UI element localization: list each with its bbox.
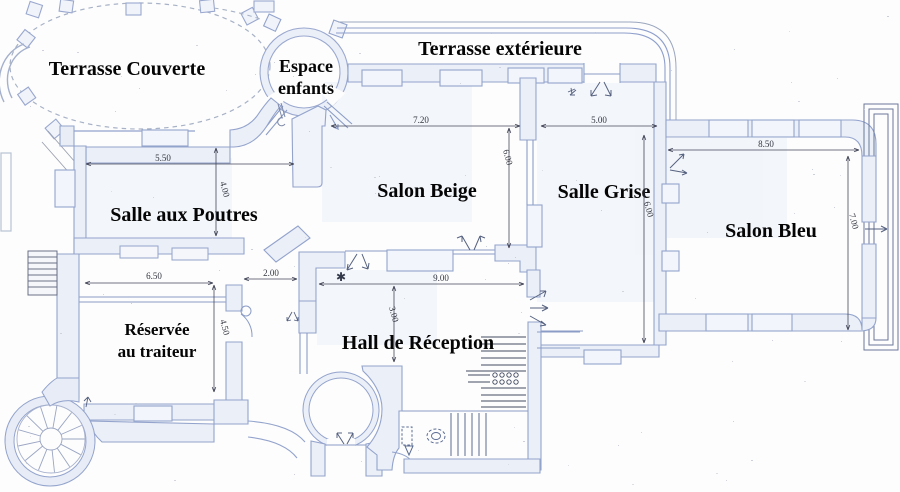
svg-text:Terrasse extérieure: Terrasse extérieure: [418, 38, 582, 60]
svg-text:Salon Beige: Salon Beige: [377, 180, 477, 202]
svg-text:Terrasse Couverte: Terrasse Couverte: [49, 58, 206, 80]
svg-text:Hall de Réception: Hall de Réception: [342, 332, 494, 354]
svg-text:5.00: 5.00: [591, 115, 607, 125]
svg-text:Réservée: Réservée: [124, 320, 190, 339]
svg-text:8.50: 8.50: [758, 139, 774, 149]
svg-text:✱: ✱: [336, 270, 346, 284]
svg-text:Salle Grise: Salle Grise: [558, 181, 651, 203]
svg-text:6.50: 6.50: [146, 271, 162, 281]
svg-text:5.50: 5.50: [155, 153, 171, 163]
svg-text:9.00: 9.00: [433, 273, 449, 283]
svg-text:Salon Bleu: Salon Bleu: [725, 220, 817, 242]
svg-text:Espace: Espace: [279, 56, 333, 76]
svg-text:Salle aux Poutres: Salle aux Poutres: [110, 204, 258, 226]
svg-text:2.00: 2.00: [263, 268, 279, 278]
svg-text:7.20: 7.20: [413, 115, 429, 125]
svg-text:enfants: enfants: [278, 78, 334, 98]
svg-text:au traiteur: au traiteur: [118, 342, 197, 361]
